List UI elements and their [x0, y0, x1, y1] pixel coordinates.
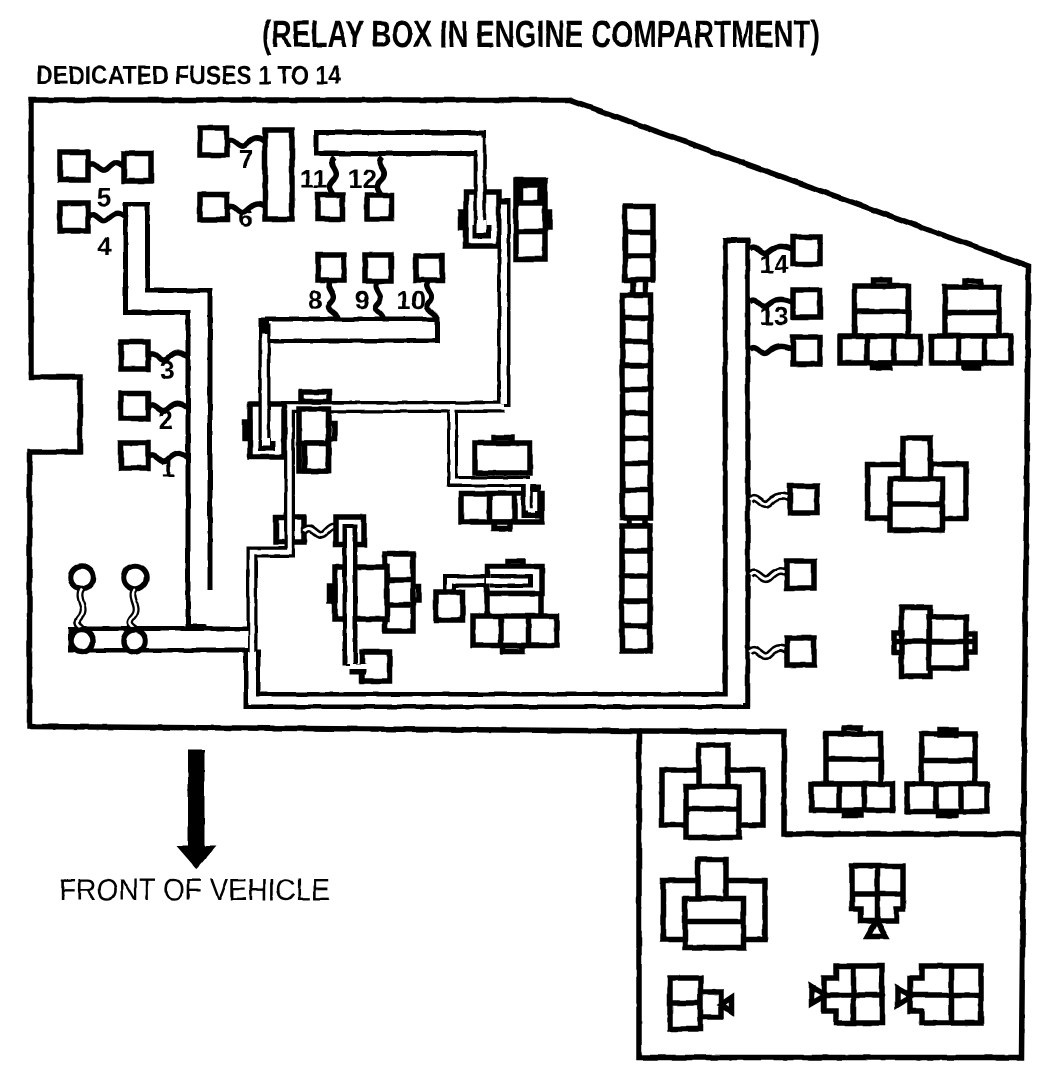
svg-text:(RELAY BOX IN ENGINE COMPARTME: (RELAY BOX IN ENGINE COMPARTMENT): [262, 14, 820, 56]
svg-text:10: 10: [397, 285, 426, 315]
svg-text:11: 11: [300, 164, 328, 194]
svg-text:13: 13: [760, 301, 789, 331]
svg-text:DEDICATED FUSES 1 TO 14: DEDICATED FUSES 1 TO 14: [36, 60, 341, 90]
svg-text:5: 5: [97, 182, 111, 212]
svg-text:2: 2: [158, 405, 172, 435]
svg-text:7: 7: [239, 144, 253, 174]
svg-text:4: 4: [97, 231, 112, 261]
svg-text:6: 6: [239, 203, 253, 233]
svg-text:3: 3: [160, 355, 174, 385]
svg-text:8: 8: [308, 285, 322, 315]
svg-text:9: 9: [355, 285, 369, 315]
svg-text:1: 1: [161, 453, 175, 483]
svg-text:14: 14: [760, 249, 789, 279]
svg-text:12: 12: [348, 164, 377, 194]
svg-text:FRONT OF VEHICLE: FRONT OF VEHICLE: [59, 872, 330, 907]
